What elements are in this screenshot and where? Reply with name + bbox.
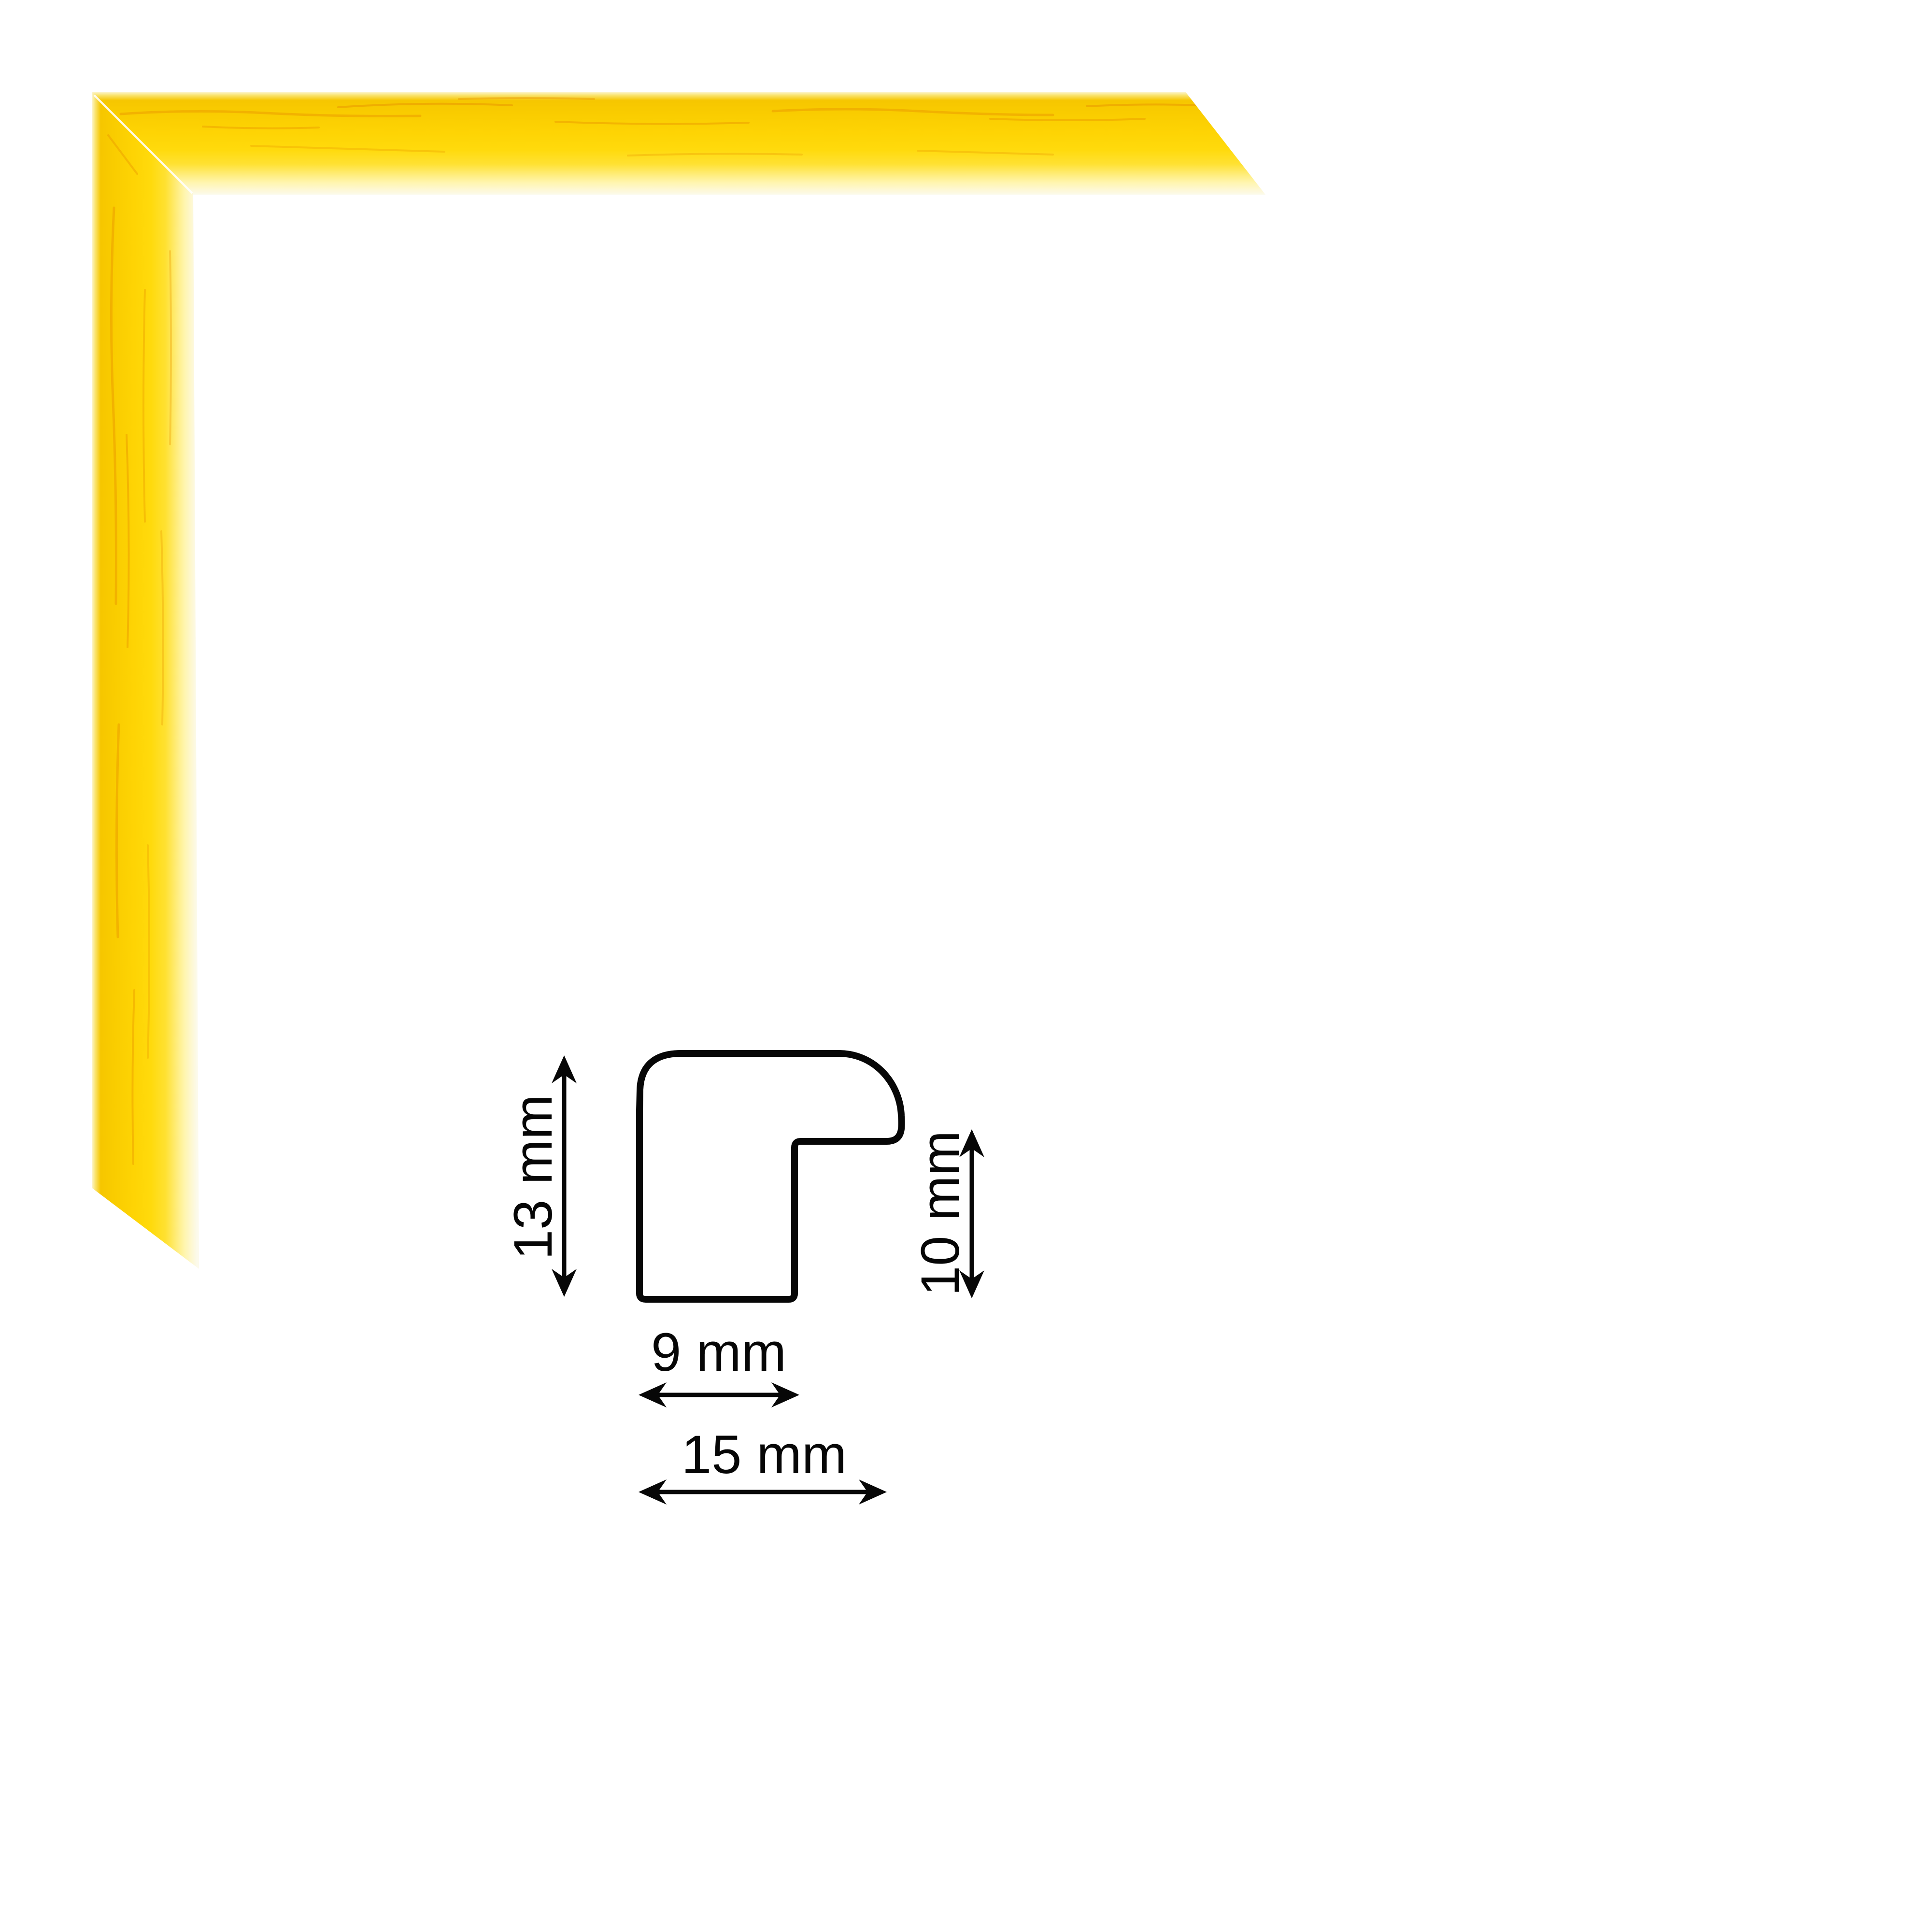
width-dimension-label: 15 mm [682, 1428, 847, 1482]
height-dimension-label: 13 mm [506, 1094, 560, 1260]
product-image: 13 mm 10 mm 9 mm 15 mm [0, 0, 1932, 1932]
profile-outline [639, 1053, 902, 1299]
face-dimension-arrow [639, 1382, 799, 1407]
face-dimension-label: 9 mm [651, 1325, 786, 1379]
frame-and-diagram-graphic [0, 0, 1932, 1932]
frame-vertical-rail [92, 92, 199, 1269]
rebate-dimension-label: 10 mm [913, 1131, 967, 1296]
frame-horizontal-rail [92, 92, 1265, 195]
